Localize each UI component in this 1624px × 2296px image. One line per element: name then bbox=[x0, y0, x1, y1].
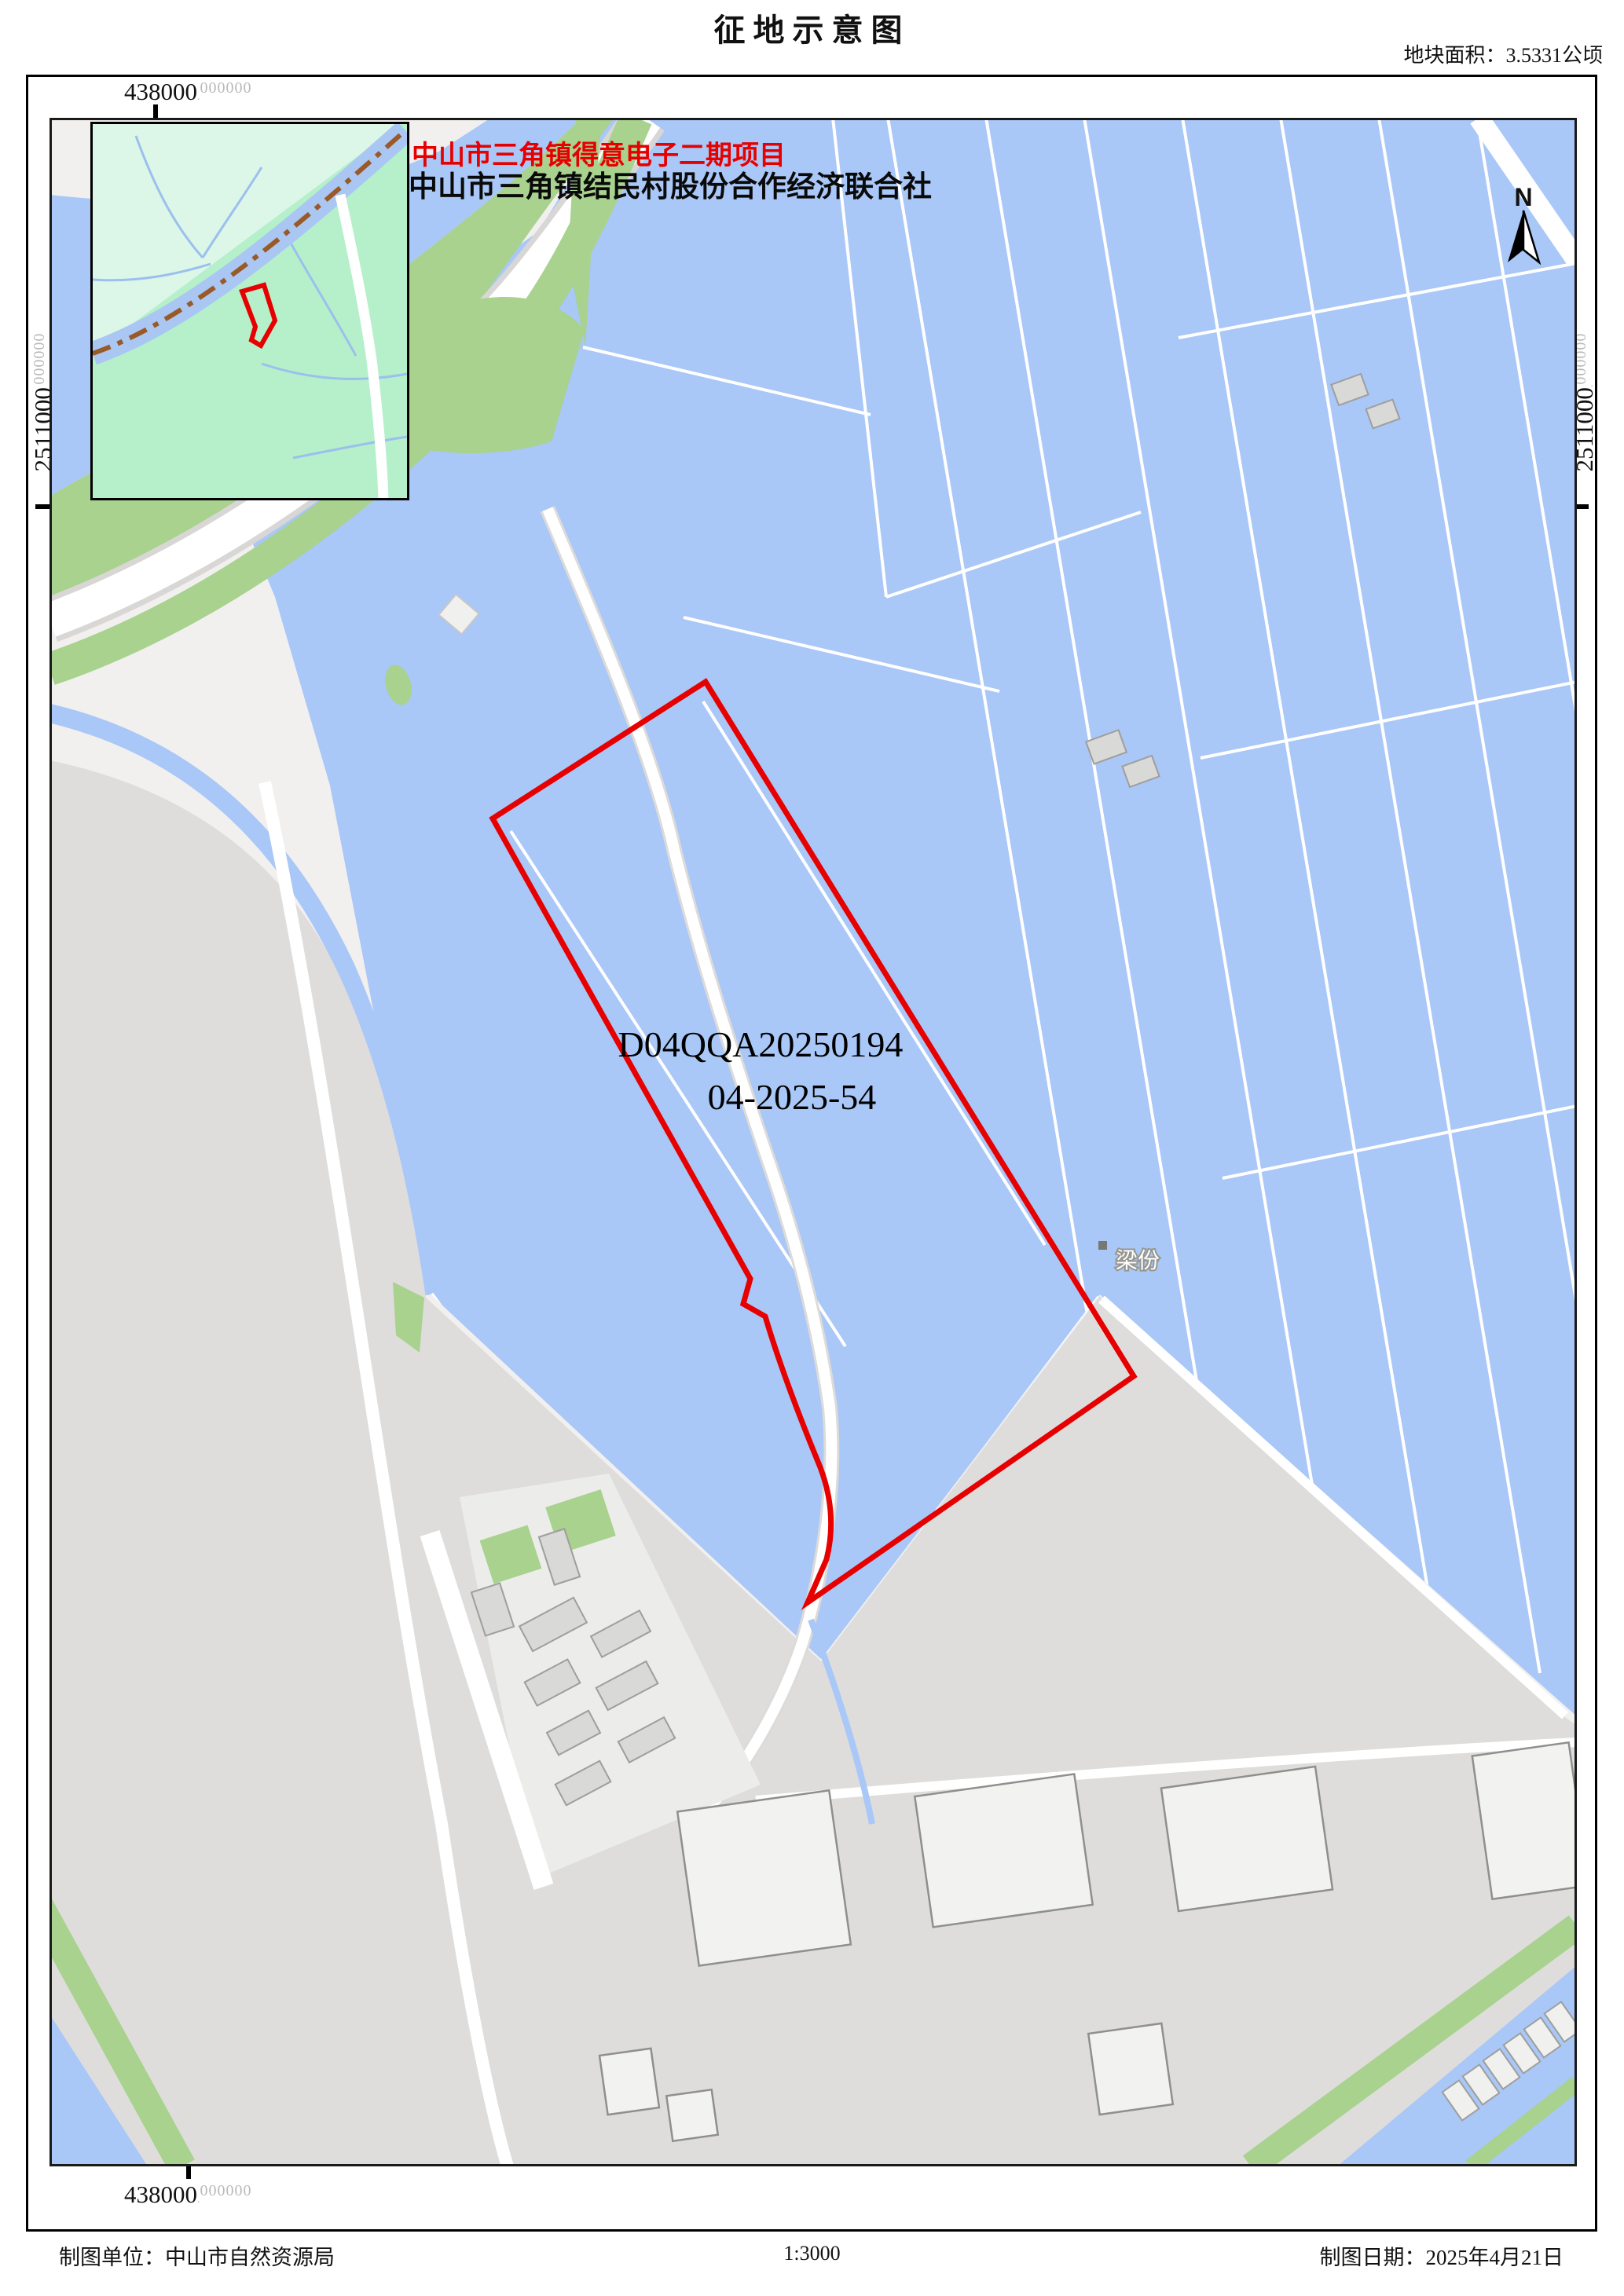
plot-area-label: 地块面积：3.5331公顷 bbox=[1403, 39, 1603, 68]
organization-label: 中山市三角镇结民村股份合作经济联合社 bbox=[409, 163, 932, 205]
grid-tick-left bbox=[35, 504, 49, 509]
approval-number-label: 04-2025-54 bbox=[708, 1077, 877, 1117]
grid-label-bottom: 438000.000000 bbox=[124, 2181, 252, 2209]
map-sheet: 征地示意图 地块面积：3.5331公顷 438000.000000 438000… bbox=[0, 0, 1624, 2296]
inset-canvas bbox=[93, 124, 407, 498]
grid-tick-bottom bbox=[186, 2166, 191, 2179]
inset-locator-map bbox=[90, 122, 409, 500]
grid-label-top: 438000.000000 bbox=[124, 78, 252, 106]
north-arrow-right-half bbox=[1523, 211, 1539, 262]
place-label-text: 梁份 bbox=[1116, 1248, 1160, 1273]
page-title: 征地示意图 bbox=[0, 5, 1624, 50]
grid-tick-top bbox=[153, 104, 158, 118]
map-date-label: 制图日期：2025年4月21日 bbox=[1320, 2240, 1564, 2271]
north-arrow: N bbox=[1495, 182, 1555, 270]
north-arrow-label: N bbox=[1514, 183, 1532, 211]
parcel-code-label: D04QQA20250194 bbox=[618, 1024, 904, 1064]
north-arrow-left-half bbox=[1508, 211, 1523, 262]
